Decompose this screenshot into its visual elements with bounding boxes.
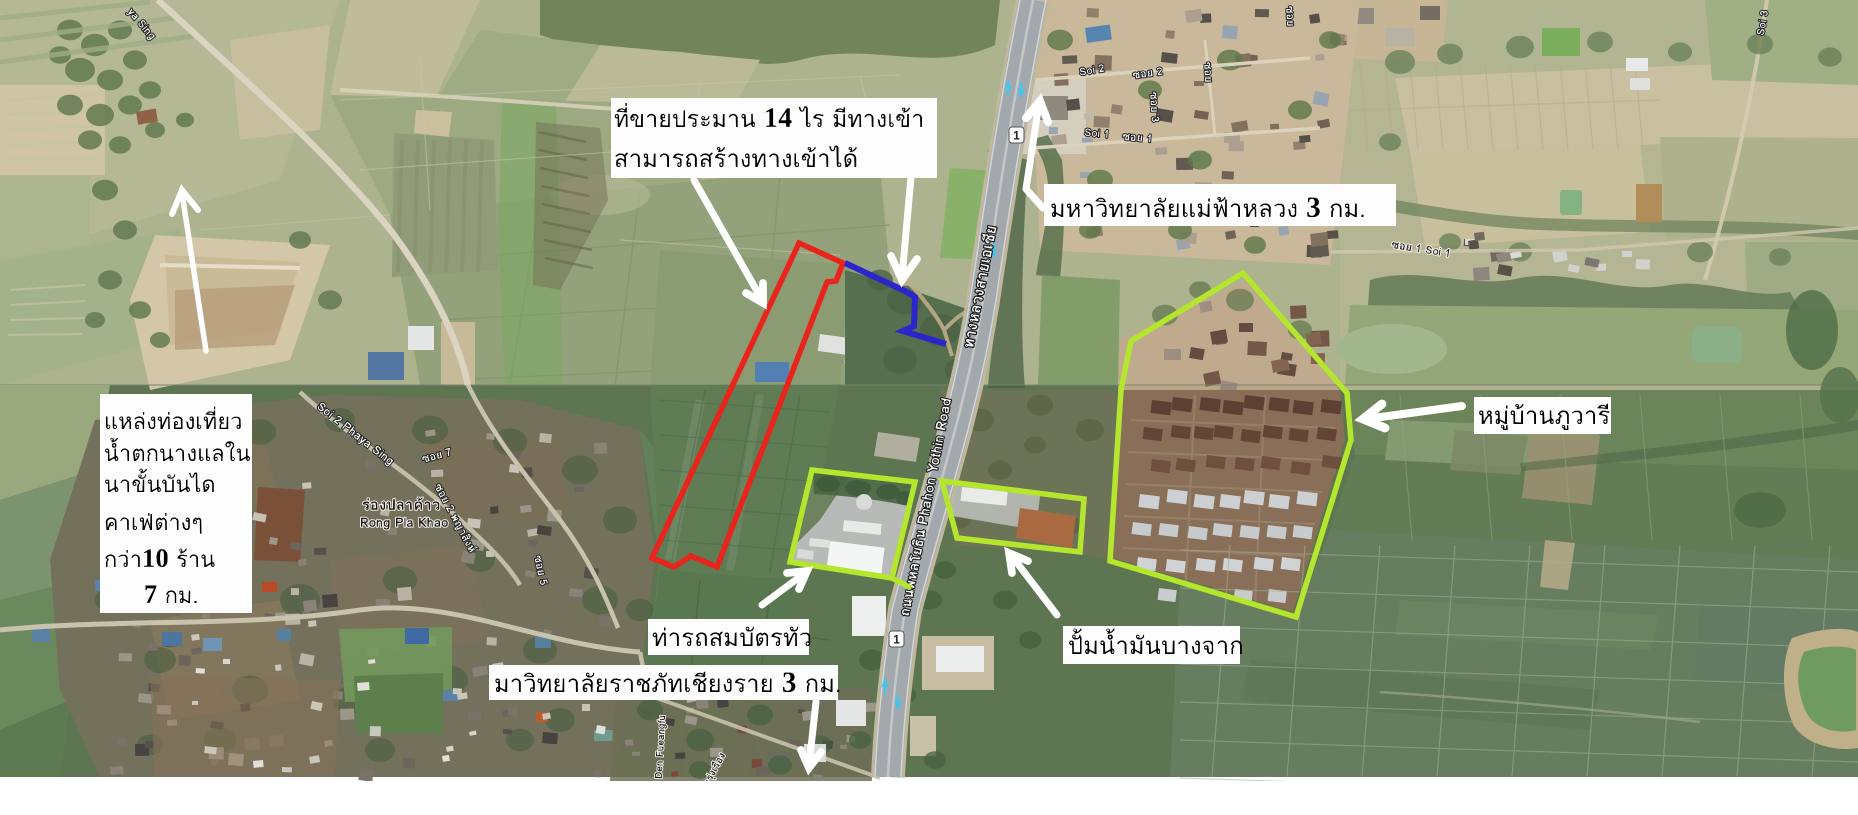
svg-text:1: 1 <box>1013 129 1020 143</box>
svg-text:1: 1 <box>893 633 900 647</box>
